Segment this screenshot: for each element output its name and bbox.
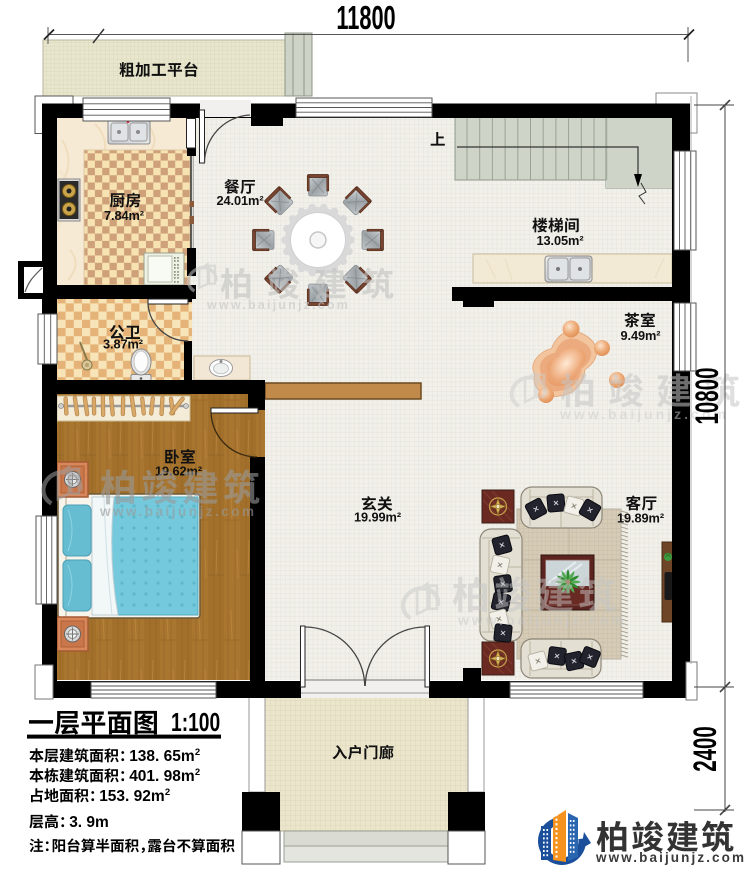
svg-text:7.84m²: 7.84m² xyxy=(104,208,144,223)
svg-text:2: 2 xyxy=(165,787,170,798)
svg-text:10800: 10800 xyxy=(689,368,725,425)
svg-text:www.baijunjz.com: www.baijunjz.com xyxy=(457,612,627,628)
svg-text:11800: 11800 xyxy=(336,0,395,36)
svg-text:1:100: 1:100 xyxy=(171,707,220,737)
svg-text:3. 9m: 3. 9m xyxy=(69,814,109,831)
svg-text:19.89m²: 19.89m² xyxy=(617,511,664,526)
svg-text:401. 98m: 401. 98m xyxy=(129,768,195,785)
svg-text:2: 2 xyxy=(195,747,200,758)
svg-text:24.01m²: 24.01m² xyxy=(217,193,264,208)
svg-text:www.baijunjz.com: www.baijunjz.com xyxy=(595,850,746,865)
svg-text:138. 65m: 138. 65m xyxy=(129,748,195,765)
svg-text:9.49m²: 9.49m² xyxy=(621,328,661,343)
svg-text:2: 2 xyxy=(195,767,200,778)
svg-text:www.baijunjz.com: www.baijunjz.com xyxy=(206,298,350,312)
svg-text:www.baijunjz.com: www.baijunjz.com xyxy=(99,504,257,519)
svg-text:13.05m²: 13.05m² xyxy=(537,233,584,248)
svg-text:2400: 2400 xyxy=(687,726,723,772)
svg-text:3.87m²: 3.87m² xyxy=(103,337,143,352)
svg-text:19.99m²: 19.99m² xyxy=(354,510,401,525)
svg-text:153. 92m: 153. 92m xyxy=(99,788,165,805)
